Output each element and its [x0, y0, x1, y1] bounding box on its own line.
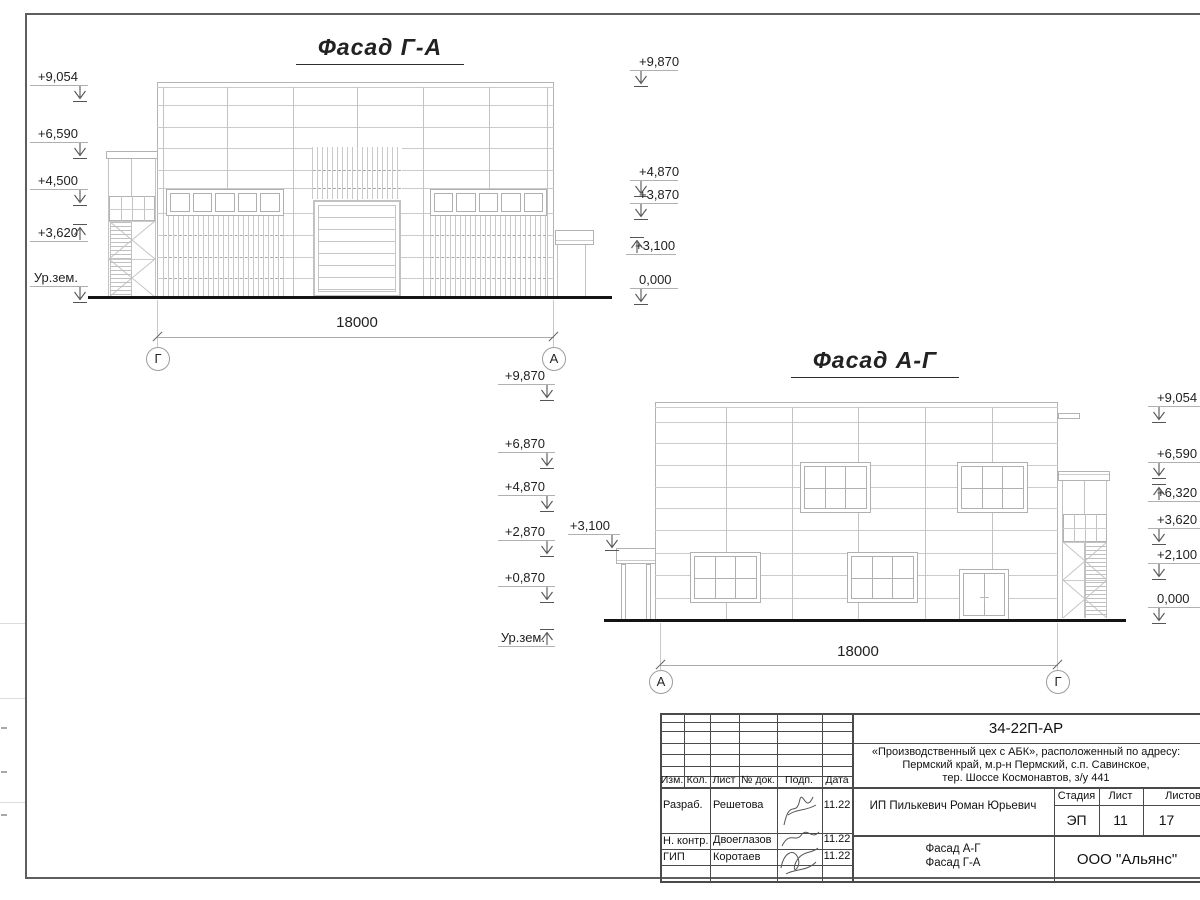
- elevation-value: Ур.зем.: [30, 270, 78, 285]
- column-line: [293, 87, 294, 297]
- level-arrow-down-icon: [537, 541, 557, 559]
- column-line: [925, 407, 926, 620]
- cladding-dashed-line: [313, 170, 401, 171]
- gate-slats: [318, 205, 396, 292]
- column-line: [423, 87, 424, 297]
- elevation-value: +6,590: [30, 126, 78, 141]
- frame-bottom: [25, 877, 1200, 879]
- drawing-sheet: Фасад Г-А Фасад А-Г 18000 Г А 18000 А Г …: [0, 0, 1200, 900]
- col-ndok: № док.: [738, 774, 778, 786]
- window-mullion: [962, 488, 1023, 489]
- elevation-value: 0,000: [639, 272, 678, 287]
- level-arrow-down-icon: [70, 287, 90, 305]
- extension-line: [157, 300, 158, 347]
- level-arrow-down-icon: [537, 453, 557, 471]
- signature-scribble: [780, 789, 820, 831]
- elevation-value: +4,870: [498, 479, 545, 494]
- level-arrow-down-icon: [631, 71, 651, 89]
- signature-scribble: [778, 828, 822, 880]
- elevation-value: +6,870: [498, 436, 545, 451]
- elevation-value: +2,870: [498, 524, 545, 539]
- frame-left: [25, 13, 27, 879]
- elevation-value: +3,620: [1157, 512, 1200, 527]
- ground-line: [88, 296, 612, 299]
- cladding-stripes: [312, 147, 402, 199]
- panel-line: [655, 530, 1058, 531]
- row-name: Решетова: [713, 799, 763, 811]
- client-name: ИП Пилькевич Роман Юрьевич: [858, 800, 1048, 812]
- annex-canopy: [555, 230, 594, 245]
- cladding-dashed-line: [164, 235, 283, 236]
- panel-line: [655, 443, 1058, 444]
- stage-label: Стадия: [1056, 790, 1097, 802]
- level-arrow-down-icon: [70, 190, 90, 208]
- row-role: Разраб.: [663, 799, 703, 811]
- level-arrow-down-icon: [1149, 529, 1169, 547]
- entrance-door: [959, 569, 1009, 620]
- elevation-value: +4,870: [639, 164, 678, 179]
- cladding-dashed-line: [313, 188, 401, 189]
- railing-bar: [1063, 528, 1107, 529]
- row-name: Коротаев: [713, 851, 761, 863]
- window-pane: [456, 193, 475, 212]
- annex-canopy-line: [556, 240, 593, 241]
- elevation-value: +9,054: [30, 69, 78, 84]
- window-band-panes: [434, 193, 543, 212]
- window-band: [430, 189, 547, 216]
- frame-top: [25, 13, 1200, 15]
- entrance-canopy: [616, 548, 656, 564]
- level-arrow-up-icon: [1149, 483, 1169, 501]
- level-arrow-down-icon: [602, 535, 622, 553]
- panel-line: [655, 407, 1058, 408]
- window-sash: [961, 466, 1024, 509]
- stair-ladder: [1085, 542, 1107, 618]
- ground-line: [604, 619, 1126, 622]
- cladding-dashed-line: [164, 278, 283, 279]
- dimension-value: 18000: [297, 314, 417, 331]
- entrance-canopy-line: [617, 560, 655, 561]
- dimension-value: 18000: [798, 643, 918, 660]
- stair-canopy: [106, 151, 158, 159]
- window-sash: [851, 556, 914, 599]
- row-role: Н. контр.: [663, 835, 708, 847]
- window-band-panes: [170, 193, 280, 212]
- level-arrow-down-icon: [631, 289, 651, 307]
- stair-post: [155, 159, 156, 297]
- window: [957, 462, 1028, 513]
- stair-canopy: [1058, 471, 1110, 481]
- annex-post: [557, 245, 558, 297]
- window-pane: [524, 193, 543, 212]
- level-arrow-up-icon: [537, 628, 557, 646]
- doc-number: 34-22П-АР: [886, 720, 1166, 737]
- company-name: ООО "Альянс": [1057, 851, 1197, 868]
- level-arrow-down-icon: [1149, 608, 1169, 626]
- panel-line: [157, 105, 554, 106]
- window-pane: [170, 193, 190, 212]
- dimension-line: [660, 665, 1058, 666]
- facade-ag-title: Фасад А-Г: [791, 347, 959, 378]
- panel-line: [157, 127, 554, 128]
- axis-bubble: А: [649, 670, 673, 694]
- window: [847, 552, 918, 603]
- stage-value: ЭП: [1056, 812, 1097, 828]
- level-arrow-down-icon: [1149, 463, 1169, 481]
- dimension-line: [157, 337, 554, 338]
- window-sash: [694, 556, 757, 599]
- elevation-value: +0,870: [498, 570, 545, 585]
- row-name: Двоеглазов: [713, 834, 771, 846]
- cladding-dashed-line: [431, 257, 546, 258]
- elevation-value: +9,054: [1157, 390, 1200, 405]
- elevation-value: +9,870: [498, 368, 545, 383]
- level-arrow-down-icon: [1149, 407, 1169, 425]
- door-leaves: [963, 573, 1005, 616]
- row-date: 11.22: [817, 799, 857, 811]
- annex-post: [585, 245, 586, 297]
- level-arrow-down-icon: [537, 587, 557, 605]
- sheet-title-line: Фасад А-Г: [858, 843, 1048, 855]
- level-arrow-down-icon: [631, 204, 651, 222]
- project-address-line: тер. Шоссе Космонавтов, з/у 441: [856, 772, 1196, 784]
- mark-leader-line: [1148, 501, 1200, 502]
- window-pane: [501, 193, 520, 212]
- canopy-post: [646, 564, 651, 620]
- window-pane: [238, 193, 258, 212]
- row-date: 11.22: [817, 833, 857, 845]
- sectional-gate: [313, 200, 401, 297]
- level-arrow-up-icon: [70, 223, 90, 241]
- window-pane: [215, 193, 235, 212]
- column-line: [792, 407, 793, 620]
- extension-line: [553, 300, 554, 347]
- cladding-dashed-line: [431, 278, 546, 279]
- level-arrow-down-icon: [70, 86, 90, 104]
- window-mullion: [805, 488, 866, 489]
- mark-leader-line: [30, 241, 88, 242]
- window: [800, 462, 871, 513]
- roof-ledge: [1058, 413, 1080, 419]
- col-data: Дата: [817, 774, 857, 786]
- sheet-number: 11: [1100, 812, 1141, 828]
- panel-line: [157, 87, 554, 88]
- axis-bubble: Г: [1046, 670, 1070, 694]
- elevation-value: +2,100: [1157, 547, 1200, 562]
- column-line: [547, 87, 548, 297]
- window-mullion: [695, 578, 756, 579]
- elevation-value: +3,100: [568, 518, 610, 533]
- cladding-stripes: [430, 216, 547, 296]
- window-pane: [260, 193, 280, 212]
- stair-canopy-line: [1059, 474, 1109, 475]
- sheet-title-line: Фасад Г-А: [858, 857, 1048, 869]
- level-arrow-down-icon: [70, 143, 90, 161]
- window-mullion: [852, 578, 913, 579]
- level-arrow-down-icon: [537, 496, 557, 514]
- stair-ladder: [110, 222, 132, 296]
- sheets-label: Листов: [1155, 790, 1200, 802]
- col-podp: Подп.: [779, 774, 819, 786]
- row-role: ГИП: [663, 851, 685, 863]
- row-date: 11.22: [817, 850, 857, 862]
- elevation-value: +9,870: [639, 54, 678, 69]
- elevation-value: +3,870: [639, 187, 678, 202]
- project-address-line: «Производственный цех с АБК», расположен…: [856, 746, 1196, 758]
- sheet-label: Лист: [1100, 790, 1141, 802]
- window-sash: [804, 466, 867, 509]
- level-arrow-down-icon: [1149, 564, 1169, 582]
- sheets-total: 17: [1146, 812, 1187, 828]
- railing-bar: [109, 209, 155, 210]
- panel-line: [655, 422, 1058, 423]
- window-band: [166, 189, 284, 216]
- mark-leader-line: [626, 254, 676, 255]
- cladding-dashed-line: [164, 257, 283, 258]
- elevation-value: +4,500: [30, 173, 78, 188]
- canopy-post: [621, 564, 626, 620]
- facade-ga-title: Фасад Г-А: [296, 34, 464, 65]
- cladding-stripes: [163, 216, 284, 296]
- level-arrow-up-icon: [627, 236, 647, 254]
- mark-leader-line: [498, 646, 555, 647]
- elevation-value: +6,590: [1157, 446, 1200, 461]
- elevation-value: 0,000: [1157, 591, 1200, 606]
- axis-bubble: Г: [146, 347, 170, 371]
- axis-bubble: А: [542, 347, 566, 371]
- window-pane: [434, 193, 453, 212]
- door-handle-icon: [984, 593, 985, 602]
- window-pane: [193, 193, 213, 212]
- level-arrow-down-icon: [537, 385, 557, 403]
- window-pane: [479, 193, 498, 212]
- cladding-dashed-line: [431, 235, 546, 236]
- project-address-line: Пермский край, м.р-н Пермский, с.п. Сави…: [856, 759, 1196, 771]
- window: [690, 552, 761, 603]
